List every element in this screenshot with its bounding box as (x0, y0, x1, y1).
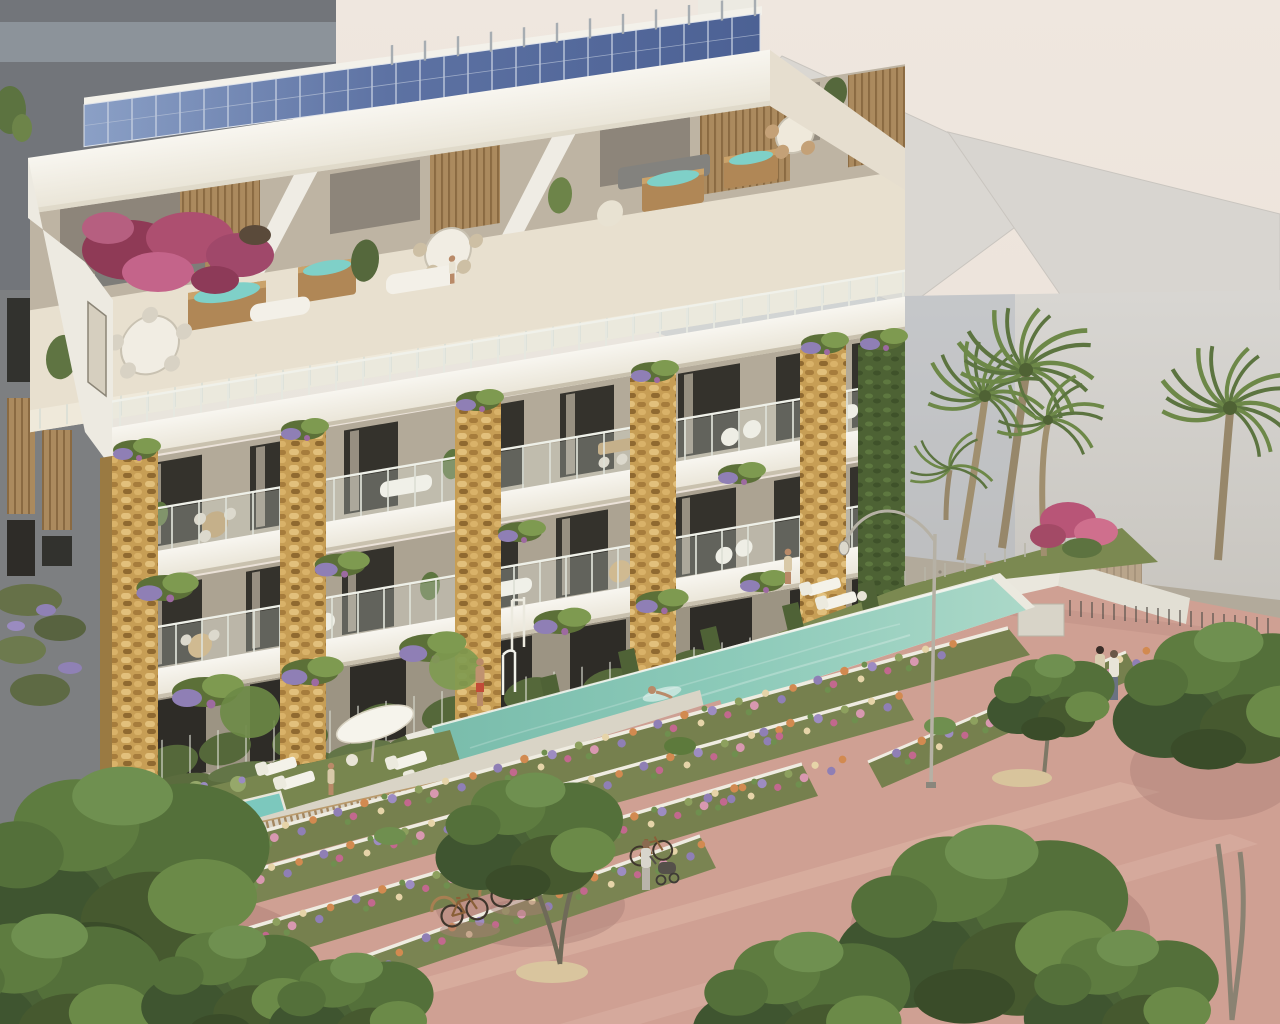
person-by-pool (784, 549, 792, 584)
person-on-terrace (328, 763, 335, 795)
stone-pillar (280, 428, 326, 768)
side-wall-window (88, 302, 106, 396)
grey-building-light-band (0, 22, 336, 62)
render-canvas (0, 0, 1280, 1024)
tree-pit (516, 961, 588, 983)
wood-slat-wall (430, 143, 500, 234)
stone-pillar (630, 370, 676, 706)
stone-pillar-corner (112, 448, 158, 802)
architectural-rendering (0, 0, 1280, 1024)
tree-pit (992, 769, 1052, 787)
